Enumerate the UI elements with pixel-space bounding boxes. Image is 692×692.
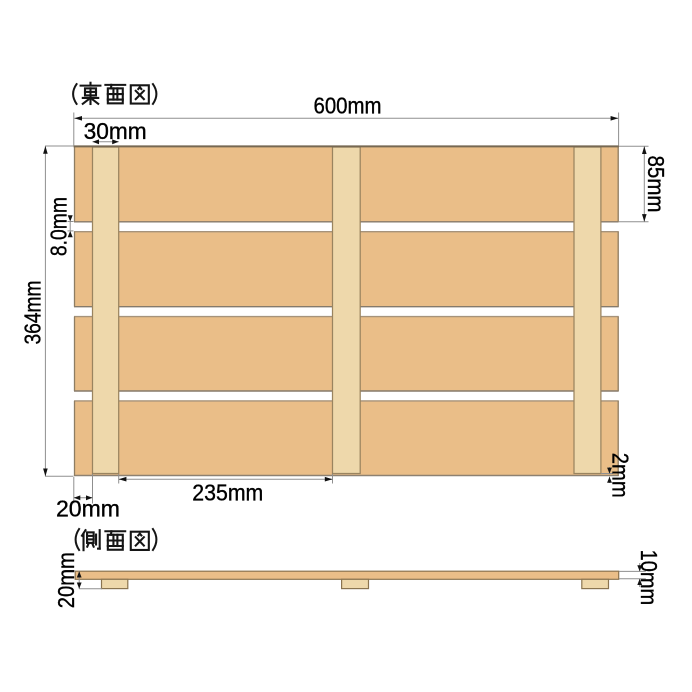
svg-text:30mm: 30mm <box>84 118 147 144</box>
svg-text:8.0mm: 8.0mm <box>46 197 72 256</box>
svg-text:20mm: 20mm <box>56 496 120 522</box>
svg-text:20mm: 20mm <box>53 552 79 608</box>
svg-text:600mm: 600mm <box>314 93 382 119</box>
svg-text:85mm: 85mm <box>643 156 669 213</box>
svg-text:10mm: 10mm <box>636 550 662 606</box>
svg-text:235mm: 235mm <box>192 480 263 506</box>
svg-text:364mm: 364mm <box>20 281 46 345</box>
svg-text:2mm: 2mm <box>607 453 633 498</box>
